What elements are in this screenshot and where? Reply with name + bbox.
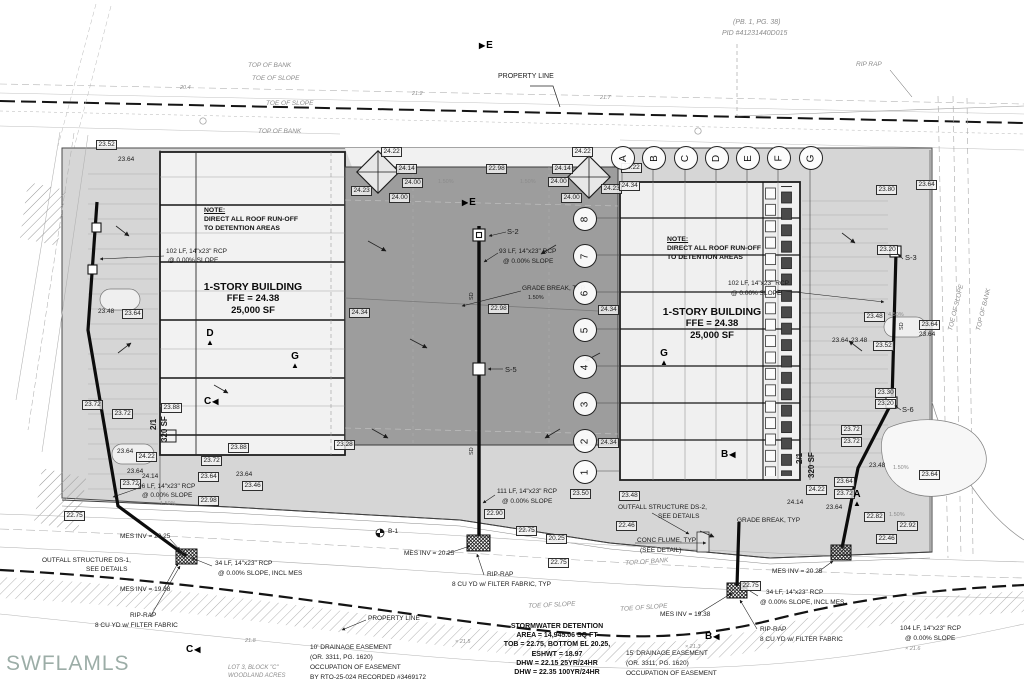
plan-linework — [0, 0, 1024, 681]
stormwater-detention-note: STORMWATER DETENTION AREA = 14,945.06 SQ… — [504, 622, 610, 677]
conc-flume — [697, 532, 709, 552]
watermark: SWFLAMLS — [6, 652, 130, 676]
right-building-title: 1-STORY BUILDING FFE = 24.38 25,000 SF — [663, 306, 761, 342]
site-plan-sheet: (PB. 1, PG. 38)PID #41231440D015TOP OF B… — [0, 0, 1024, 681]
center-phase-area — [345, 167, 618, 445]
left-building-title: 1-STORY BUILDING FFE = 24.38 25,000 SF — [204, 281, 302, 317]
left-building-note: NOTE: DIRECT ALL ROOF RUN-OFF TO DETENTI… — [204, 206, 298, 233]
right-building-note: NOTE: DIRECT ALL ROOF RUN-OFF TO DETENTI… — [667, 235, 761, 262]
top-contour-lines — [0, 4, 1024, 150]
benchmark-symbol — [376, 529, 384, 537]
